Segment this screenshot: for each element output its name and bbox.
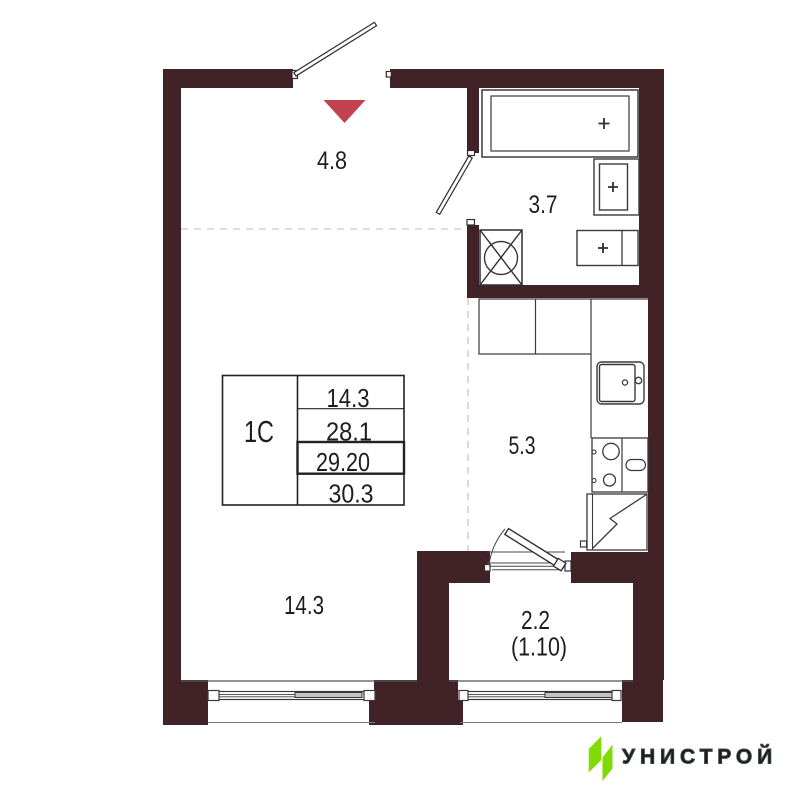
svg-text:3.7: 3.7	[529, 191, 558, 219]
svg-text:29.20: 29.20	[316, 447, 370, 477]
svg-text:УНИСТРОЙ: УНИСТРОЙ	[622, 745, 777, 769]
svg-text:4.8: 4.8	[317, 147, 347, 175]
svg-text:14.3: 14.3	[327, 383, 370, 413]
svg-text:5.3: 5.3	[509, 432, 536, 460]
svg-text:28.1: 28.1	[326, 417, 372, 447]
svg-text:14.3: 14.3	[284, 590, 324, 620]
svg-text:2.2: 2.2	[521, 605, 550, 635]
svg-text:30.3: 30.3	[329, 479, 374, 509]
svg-text:1С: 1С	[244, 414, 274, 449]
svg-text:(1.10): (1.10)	[511, 632, 567, 662]
